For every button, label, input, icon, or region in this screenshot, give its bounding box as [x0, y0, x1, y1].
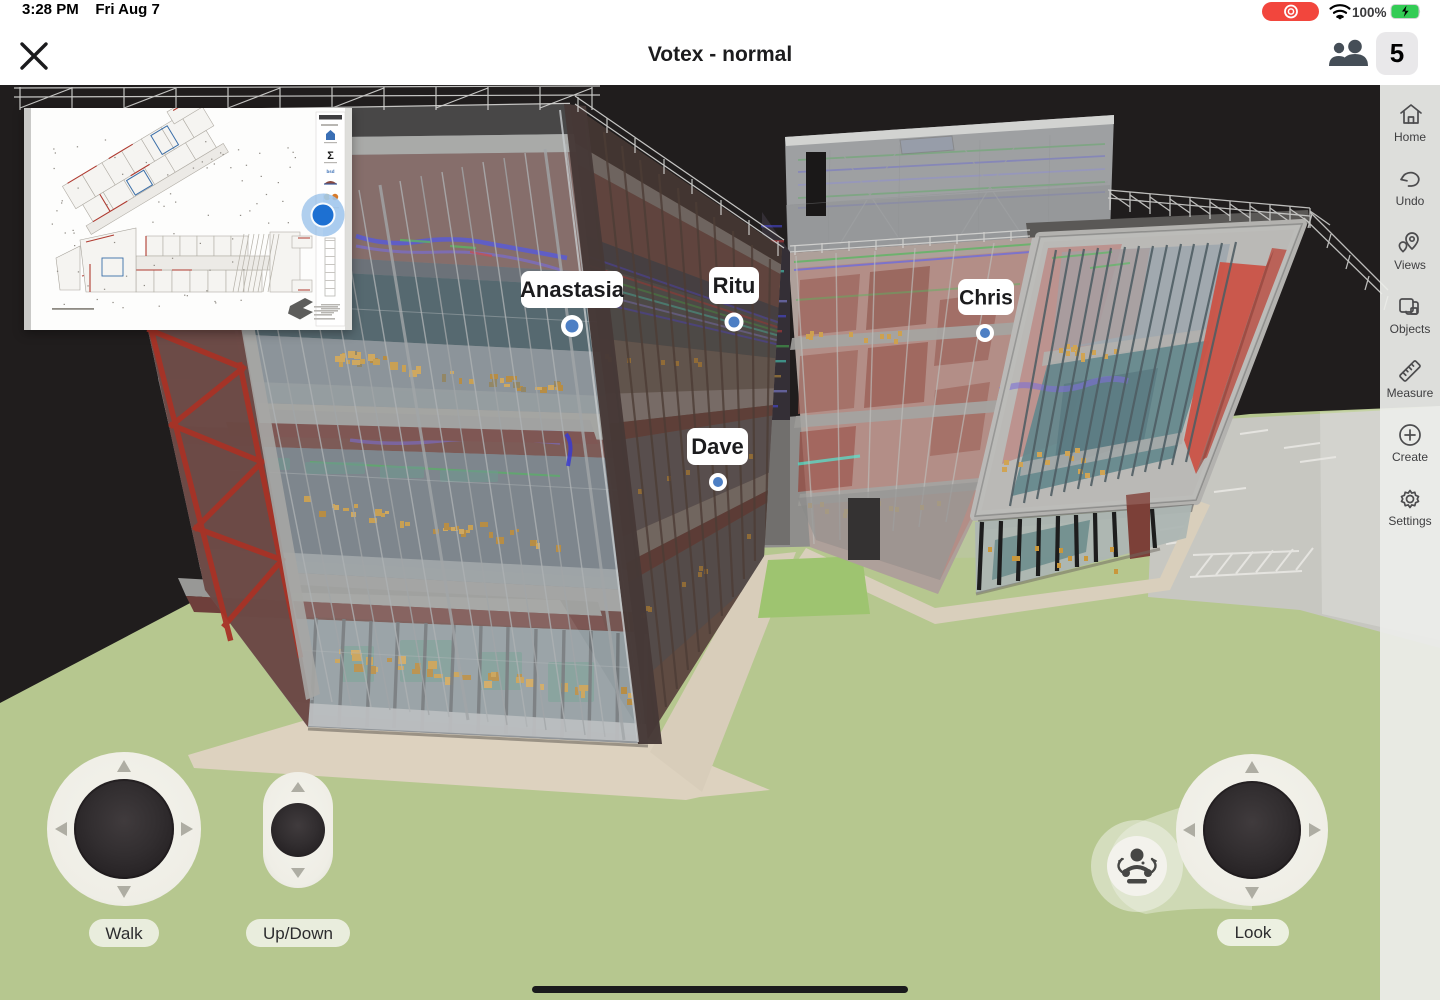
svg-text:Look: Look	[1235, 923, 1272, 942]
svg-text:100%: 100%	[1352, 5, 1387, 20]
svg-text:Walk: Walk	[105, 924, 143, 943]
svg-text:Up/Down: Up/Down	[263, 924, 333, 943]
